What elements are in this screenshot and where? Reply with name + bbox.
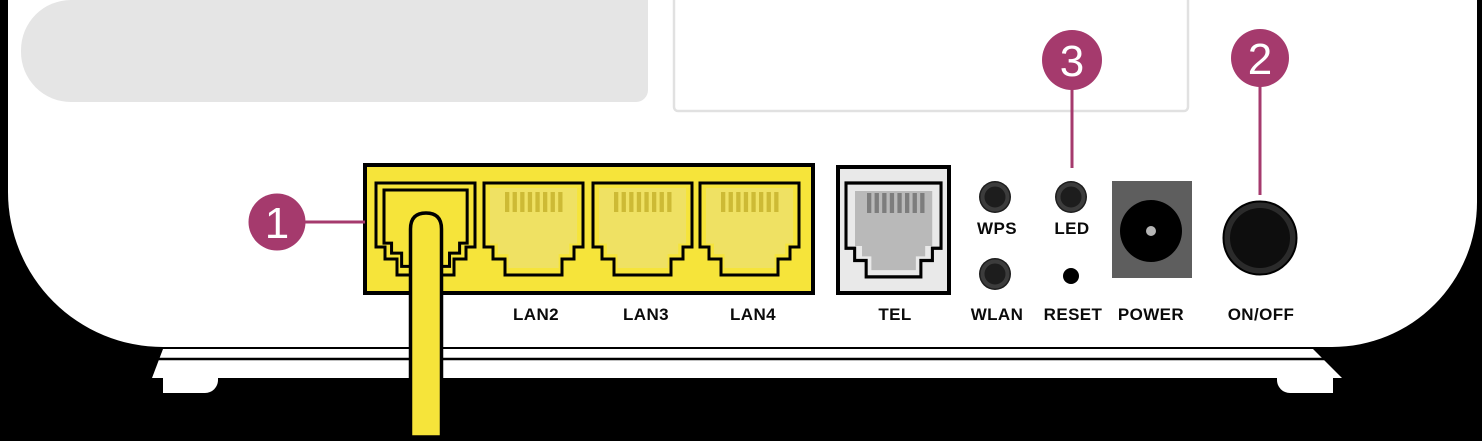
callout-1-number: 1 [265,199,289,248]
led-label: LED [1054,219,1089,238]
router-rear-diagram: 1 2 3 LAN2 LAN3 LAN4 TEL WPS LED WLAN RE… [0,0,1482,441]
lan4-label: LAN4 [730,305,776,324]
wlan-label: WLAN [971,305,1024,324]
callout-3-number: 3 [1060,37,1084,86]
top-sticker-area [21,0,648,102]
onoff-label: ON/OFF [1228,305,1295,324]
power-label: POWER [1118,305,1184,324]
reset-label: RESET [1044,305,1103,324]
wps-button [979,181,1011,213]
stand-bar [152,349,1342,378]
right-foot [1277,378,1333,393]
tel-label: TEL [878,305,911,324]
wps-label: WPS [977,219,1017,238]
ethernet-cable [411,213,442,437]
reset-pinhole [1063,268,1079,284]
onoff-button [1224,202,1297,275]
callout-2-number: 2 [1248,35,1272,84]
left-foot [163,378,218,393]
lan2-label: LAN2 [513,305,559,324]
led-button [1055,181,1087,213]
power-jack [1112,181,1192,278]
lan3-label: LAN3 [623,305,669,324]
wlan-button [979,258,1011,290]
top-label-outline [674,0,1188,111]
power-jack-pin [1146,226,1156,236]
